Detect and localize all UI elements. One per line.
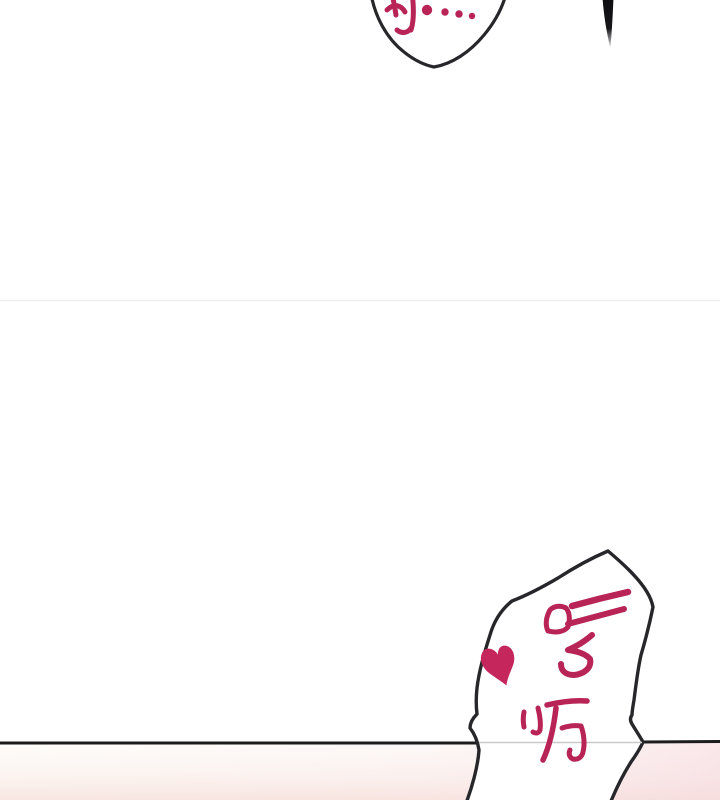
hair-strand-icon [603, 0, 614, 48]
dot [422, 5, 432, 15]
dot [441, 8, 448, 15]
comic-page: 阿… 哼呃 ♥ [0, 0, 720, 800]
panel-border-line-right [643, 742, 720, 743]
dot [469, 13, 475, 19]
hanzi-stroke [411, 0, 413, 30]
hanzi-stroke [523, 712, 524, 727]
dot [455, 10, 462, 17]
top-speech-bubble [371, 0, 506, 67]
comic-art [0, 0, 720, 800]
